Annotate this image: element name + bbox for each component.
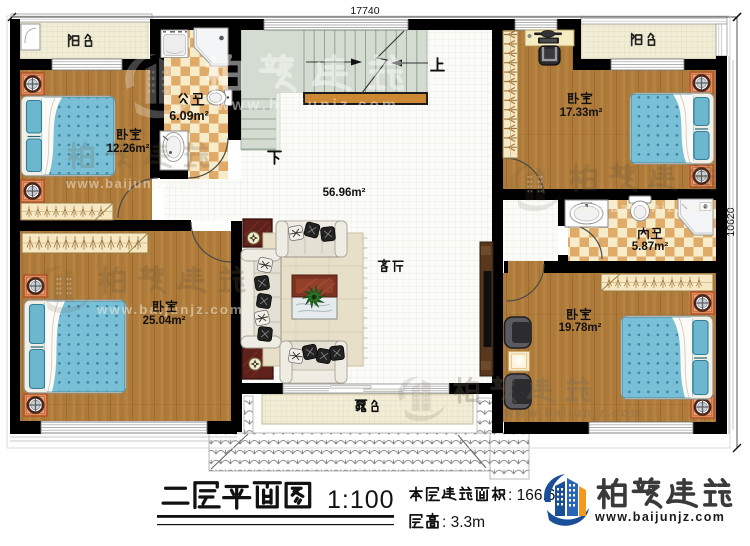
svg-text:12.26m²: 12.26m² bbox=[107, 143, 150, 155]
svg-text:17740: 17740 bbox=[350, 5, 379, 17]
svg-text:www.baijunjz.com: www.baijunjz.com bbox=[594, 510, 725, 524]
svg-text:10620: 10620 bbox=[725, 207, 737, 236]
svg-text:1:100: 1:100 bbox=[327, 486, 395, 514]
svg-text:19.78m²: 19.78m² bbox=[559, 322, 602, 334]
svg-text:17.33m²: 17.33m² bbox=[560, 107, 603, 119]
svg-text:www.baijunjz.com: www.baijunjz.com bbox=[503, 406, 644, 420]
svg-text:5.87m²: 5.87m² bbox=[632, 241, 669, 253]
svg-text:www.baijunjz.com: www.baijunjz.com bbox=[567, 200, 715, 215]
svg-text:6.09m²: 6.09m² bbox=[169, 109, 209, 123]
svg-text:www.baijunjz.com: www.baijunjz.com bbox=[65, 176, 201, 191]
svg-text:25.04m²: 25.04m² bbox=[143, 315, 186, 327]
svg-text:: 3.3m: : 3.3m bbox=[442, 514, 485, 531]
svg-text:www.baijunjz.com: www.baijunjz.com bbox=[216, 97, 399, 114]
svg-text:56.96m²: 56.96m² bbox=[323, 187, 366, 199]
